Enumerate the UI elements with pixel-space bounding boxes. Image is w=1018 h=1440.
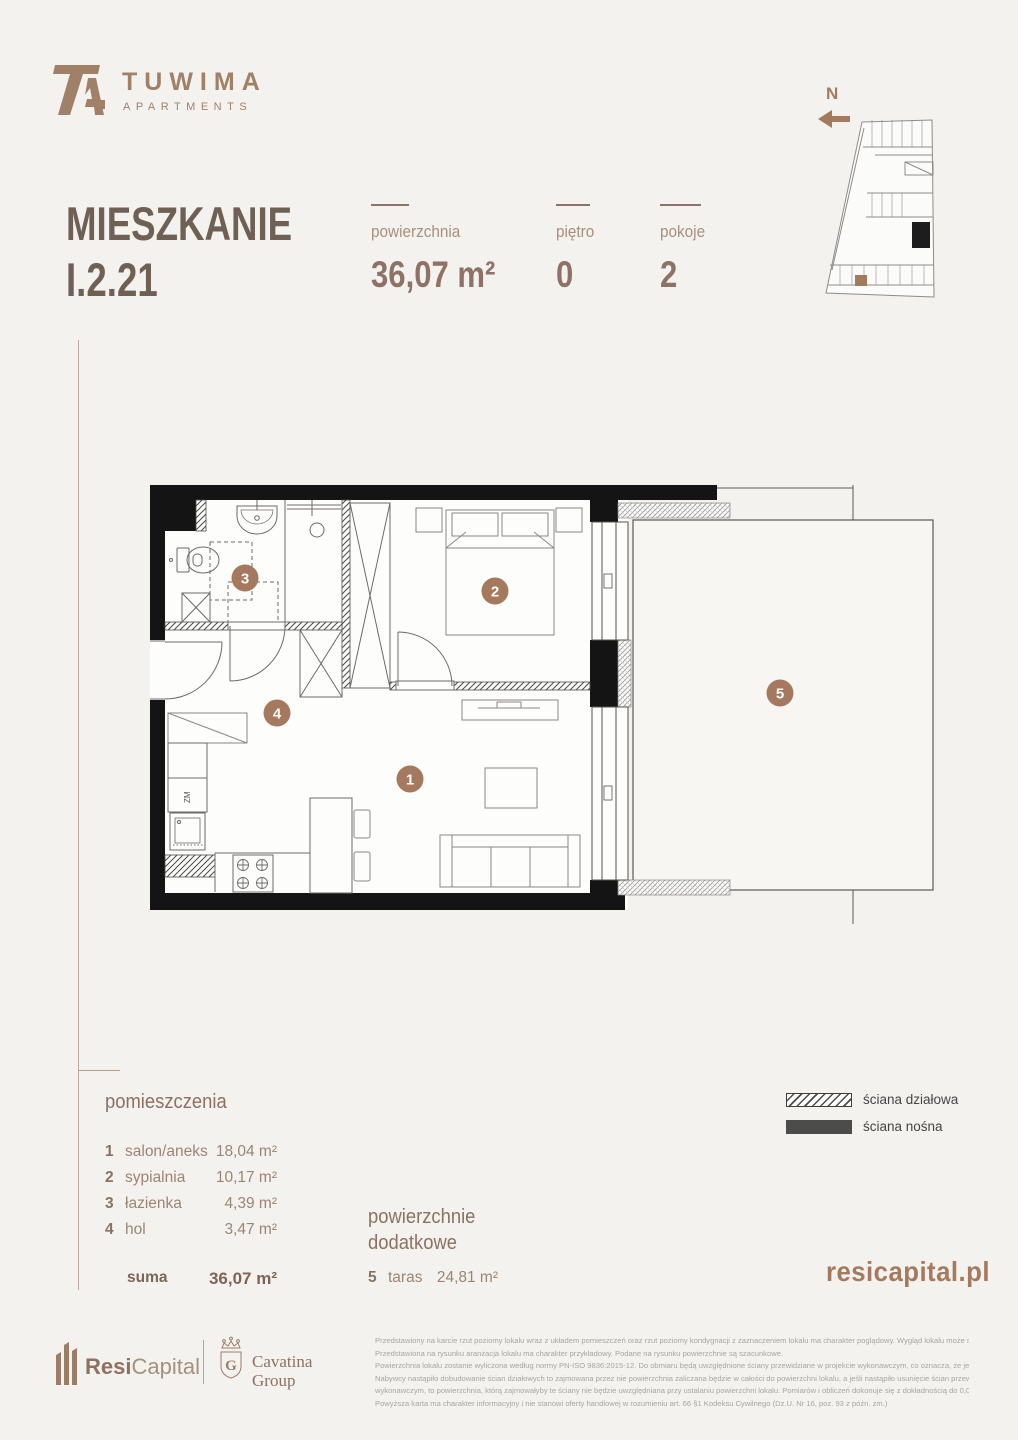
room-name: hol bbox=[125, 1221, 224, 1239]
room-name: sypialnia bbox=[125, 1169, 216, 1187]
stat-rule bbox=[660, 204, 701, 206]
room-name: taras bbox=[388, 1269, 437, 1287]
svg-text:4: 4 bbox=[273, 706, 282, 723]
room-row: 4 hol 3,47 m² bbox=[105, 1221, 277, 1239]
floor-label: piętro bbox=[556, 222, 594, 242]
legend-label: ściana działowa bbox=[863, 1092, 958, 1107]
svg-text:3: 3 bbox=[241, 571, 249, 588]
sum-row: suma 36,07 m² bbox=[127, 1269, 277, 1289]
left-accent-rule bbox=[78, 340, 79, 1290]
area-value: 36,07 m² bbox=[371, 254, 495, 296]
rooms-label: pokoje bbox=[660, 222, 705, 242]
sum-value: 36,07 m² bbox=[209, 1269, 277, 1289]
cavatina-line2: Group bbox=[252, 1371, 312, 1390]
room-no: 5 bbox=[368, 1269, 388, 1287]
resi-bold: Resi bbox=[85, 1354, 131, 1379]
disclaimer-line: wykonawczym, to powierzchnia, którą zajm… bbox=[375, 1385, 969, 1398]
room-area: 3,47 m² bbox=[224, 1221, 277, 1239]
room-name: salon/aneks bbox=[125, 1143, 216, 1161]
unit-number: I.2.21 bbox=[66, 252, 158, 307]
room-no: 1 bbox=[105, 1143, 125, 1161]
disclaimer-line: Powyższa karta ma charakter informacyjny… bbox=[375, 1398, 969, 1411]
svg-text:2: 2 bbox=[491, 584, 499, 601]
svg-text:1: 1 bbox=[406, 772, 414, 789]
resicapital-logo-icon bbox=[56, 1341, 80, 1385]
room-no: 3 bbox=[105, 1195, 125, 1213]
sum-label: suma bbox=[127, 1269, 209, 1289]
legend-label: ściana nośna bbox=[863, 1119, 943, 1134]
disclaimer-line: Przedstawiona na rysunku aranżacja lokal… bbox=[375, 1348, 969, 1361]
fridge-label: ZM bbox=[183, 791, 192, 803]
living-room-window bbox=[592, 707, 628, 880]
disclaimer-line: Nabywcy nastąpiło dobudowanie ścian dzia… bbox=[375, 1373, 969, 1386]
room-no: 2 bbox=[105, 1169, 125, 1187]
room-row: 1 salon/aneks 18,04 m² bbox=[105, 1143, 277, 1161]
room-area: 10,17 m² bbox=[216, 1169, 277, 1187]
room-name: łazienka bbox=[125, 1195, 224, 1213]
resi-light: Capital bbox=[131, 1354, 199, 1379]
brand-name: TUWIMA bbox=[122, 68, 267, 97]
rooms-header: pomieszczenia bbox=[105, 1091, 227, 1114]
room-area: 4,39 m² bbox=[224, 1195, 277, 1213]
stat-rule bbox=[371, 204, 409, 206]
disclaimer-line: Powierzchnia lokalu zostanie wyliczona w… bbox=[375, 1360, 969, 1373]
resicapital-wordmark: ResiCapital bbox=[85, 1354, 200, 1380]
additional-row: 5 taras 24,81 m² bbox=[368, 1269, 498, 1287]
area-label: powierzchnia bbox=[371, 222, 460, 242]
room-area: 18,04 m² bbox=[216, 1143, 277, 1161]
room-no: 4 bbox=[105, 1221, 125, 1239]
page-title: MIESZKANIE bbox=[66, 196, 292, 251]
legend-partition: ściana działowa bbox=[786, 1092, 958, 1107]
disclaimer-line: Przedstawiony na karcie rzut poziomy lok… bbox=[375, 1335, 969, 1348]
unit-location-marker bbox=[855, 275, 867, 286]
tuwima-logo-icon bbox=[52, 60, 112, 118]
disclaimer-text: Przedstawiony na karcie rzut poziomy lok… bbox=[375, 1335, 969, 1410]
cavatina-line1: Cavatina bbox=[252, 1352, 312, 1371]
svg-text:G: G bbox=[225, 1358, 237, 1374]
floor-value: 0 bbox=[556, 254, 573, 296]
floor-plan: ZM 1 2 3 4 5 bbox=[140, 460, 950, 950]
cavatina-wordmark: Cavatina Group bbox=[252, 1352, 312, 1390]
partition-wall-swatch bbox=[786, 1093, 852, 1107]
website-link[interactable]: resicapital.pl bbox=[826, 1256, 990, 1288]
stat-rule bbox=[556, 204, 590, 206]
apartment-card: TUWIMA APARTMENTS N bbox=[0, 0, 1018, 1440]
section-tick bbox=[78, 1070, 120, 1071]
svg-text:5: 5 bbox=[776, 686, 784, 703]
bearing-wall-swatch bbox=[786, 1120, 852, 1134]
room-row: 2 sypialnia 10,17 m² bbox=[105, 1169, 277, 1187]
footer-divider bbox=[203, 1340, 204, 1384]
rooms-value: 2 bbox=[660, 254, 677, 296]
brand-subtitle: APARTMENTS bbox=[123, 101, 252, 113]
balcony-door-window bbox=[592, 522, 628, 640]
room-row: 3 łazienka 4,39 m² bbox=[105, 1195, 277, 1213]
site-plan bbox=[800, 60, 950, 305]
room-area: 24,81 m² bbox=[437, 1269, 498, 1287]
legend-bearing: ściana nośna bbox=[786, 1119, 943, 1134]
additional-header: powierzchnie dodatkowe bbox=[368, 1204, 478, 1256]
cavatina-logo-icon: G bbox=[217, 1336, 245, 1384]
